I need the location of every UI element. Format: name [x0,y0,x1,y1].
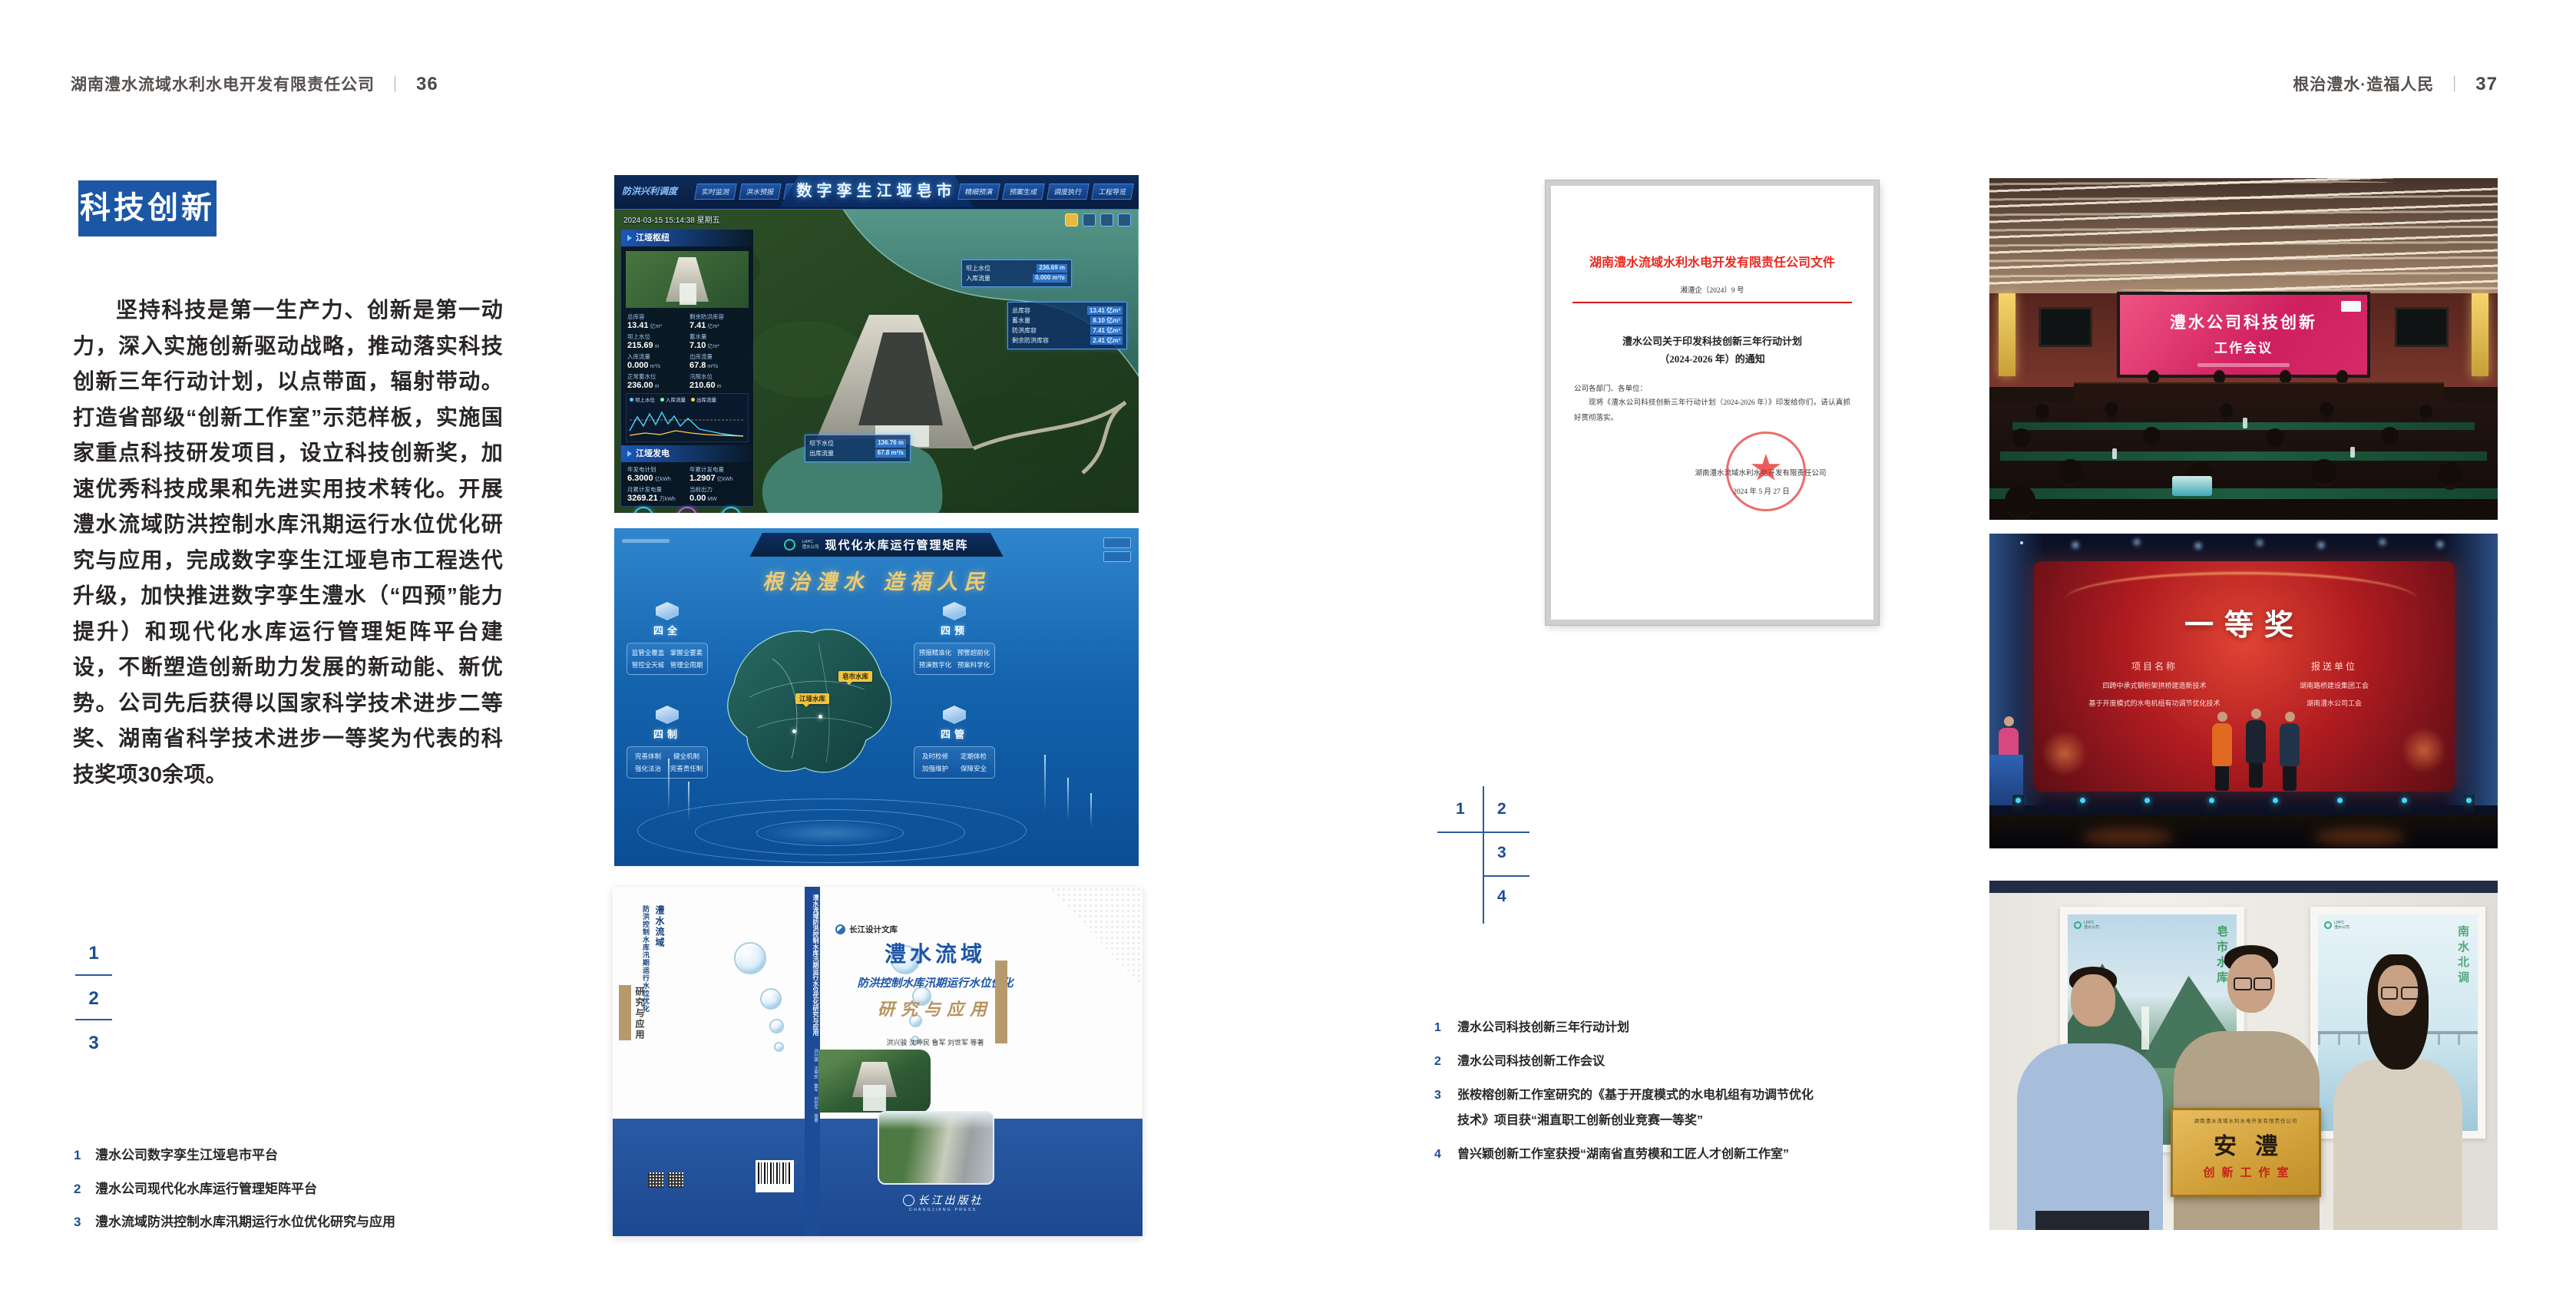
audience-head [2005,485,2035,516]
caption-number: 1 [1434,1015,1451,1040]
desk-row [1989,488,2498,499]
figure-book-cover: 澧水流域 防洪控制水库汛期运行水位优化 研究与应用 澧水流域防洪控制水库汛期运行… [613,887,1143,1236]
audience-area [1989,402,2498,520]
stat-current-output: 当前出力0.00MW [689,485,747,503]
map-marker-jiangya[interactable]: 江垭水库 [795,693,829,704]
rostrum-person [2336,370,2348,383]
figure-key-1: 1 [1456,800,1465,818]
spillway-shape [863,1085,886,1111]
power-stats-grid: 年发电计划6.3000亿kWh 年累计发电量1.2907亿kWh 月累计发电量3… [627,465,747,503]
award-org-column: 报送单位 湖南路桥建设集团工会 湖南澧水公司工会 [2244,660,2424,716]
caption-row: 3张桉榕创新工作室研究的《基于开度模式的水电机组有功调节优化技术》项目获“湘直职… [1434,1083,1818,1133]
tab-flood-forecast[interactable]: 洪水预报 [739,184,782,200]
stat-normal-level: 正常蓄水位236.00m [627,372,685,390]
group-name: 四预 [914,623,995,637]
map-dot [818,715,822,719]
photo-studio-plaque: LHPC澧水公司 皂市水库 LHPC澧水公司 南水北调 湖南澧水流域水利水电开发… [1989,881,2498,1230]
caption-list-right: 1澧水公司科技创新三年行动计划 2澧水公司科技创新工作会议 3张桉榕创新工作室研… [1434,1015,1818,1175]
tab-dispatch[interactable]: 调度执行 [1047,184,1090,200]
column-header: 报送单位 [2244,660,2424,673]
floor-reflection [2313,828,2406,845]
platform-tabs-right: 精细预演 预案生成 调度执行 工程导览 [959,184,1133,200]
alert-icon[interactable] [1065,213,1078,226]
platform-datetime: 2024-03-15 15:14:38 星期五 [623,213,720,225]
meeting-led-screen: 澧水公司科技创新 工作会议 [2117,292,2370,378]
caption-text: 澧水公司现代化水库运行管理矩阵平台 [95,1182,317,1196]
document-title-line2: （2024-2026 年）的通知 [1551,351,1873,365]
generator-gauges [621,507,753,513]
header-separator: ｜ [387,76,404,94]
platform-ring [756,820,904,846]
official-seal [1726,431,1806,511]
award-columns: 项目名称 四跨中承式钢桁架拱桥建造新技术 基于开度模式的水电机组有功调节优化技术… [2065,660,2424,716]
matrix-button-top[interactable] [1103,537,1131,548]
figure-key-divider [1437,832,1529,833]
photo-award-ceremony: 一等奖 项目名称 四跨中承式钢桁架拱桥建造新技术 基于开度模式的水电机组有功调节… [1989,534,2498,848]
panel-arrow-icon [627,235,632,241]
audience-head [2035,404,2049,418]
stat-total-capacity: 总库容13.41亿m³ [627,312,685,330]
callout-upstream: 坝上水位236.69 m 入库流量0.000 m³/s [961,260,1072,287]
publisher-name-en: CHANGJIANG PRESS [858,1208,1027,1212]
matrix-datetime-placeholder [622,539,670,543]
front-tan-bar [995,960,1007,1043]
figure-official-document: 湖南澧水流域水利水电开发有限责任公司文件 湘澧企〔2024〕9 号 澧水公司关于… [1546,180,1879,625]
screen-date-placeholder [2197,363,2290,367]
group-name: 四管 [914,726,995,741]
bokeh-glow [2401,727,2447,773]
award-project: 四跨中承式钢桁架拱桥建造新技术 [2071,680,2238,690]
map-dot [792,729,796,733]
panel-power-title: 江垭发电 [636,445,670,462]
waterfall-shape [2141,1007,2149,1050]
screen-title-line2: 工作会议 [2120,337,2367,356]
barcode [756,1160,794,1192]
matrix-group-siquan: 四全 监管全覆盖掌握全要素 管控全天候管理全周期 [627,602,708,675]
figure-key-1: 1 [75,943,112,964]
side-screen-left [2039,307,2092,347]
group-items: 监管全覆盖掌握全要素 管控全天候管理全周期 [627,643,708,675]
stat-inflow: 入库流量0.000m³/s [627,352,685,370]
rostrum-person [2148,370,2159,383]
layers-icon[interactable] [1083,213,1096,226]
water-droplet [760,988,782,1010]
award-winner-orange [2211,712,2234,791]
stat-remaining-flood-capacity: 剩余防洪库容7.41亿m³ [689,312,747,330]
matrix-button-bottom[interactable] [1103,551,1131,562]
photo-innovation-meeting: 澧水公司科技创新 工作会议 [1989,178,2498,520]
caption-number: 1 [74,1148,95,1163]
audience-head [2266,428,2284,447]
group-items: 完善体制健全机制 强化法治完善责任制 [627,746,708,779]
globe-icon [835,924,845,934]
audience-head [2320,402,2333,416]
screen-logo [2341,301,2361,312]
hub-stats-grid: 总库容13.41亿m³ 剩余防洪库容7.41亿m³ 坝上水位215.69m 蓄水… [627,312,747,390]
spine-title: 澧水流域防洪控制水库汛期运行水位优化研究与应用 [812,894,819,1036]
document-title-line1: 澧水公司关于印发科技创新三年行动计划 [1551,333,1873,348]
cube-icon [943,706,966,724]
group-items: 预报精准化预警超前化 预演数字化预案科学化 [914,643,995,675]
caption-text: 曾兴颖创新工作室获授“湖南省直劳模和工匠人才创新工作室” [1457,1142,1789,1167]
stat-annual-generation: 年累计发电量1.2907亿kWh [689,465,747,483]
award-project: 基于开度模式的水电机组有功调节优化技术 [2071,698,2238,708]
chart-legend: 坝上水位 入库流量 出库流量 [627,394,748,405]
poster-title-vertical: 南水北调 [2455,925,2472,987]
figure-key-divider [75,1019,112,1020]
lhpc-logo-small: LHPC澧水公司 [2324,921,2349,930]
figure-key-4: 4 [1497,888,1506,906]
cover-photo-dam-front [878,1111,994,1185]
caption-number: 3 [74,1215,95,1230]
matrix-slogan: 根治澧水 造福人民 [614,565,1139,595]
caption-row: 2澧水公司现代化水库运行管理矩阵平台 [74,1178,317,1197]
qr-code [648,1172,663,1188]
body-paragraph: 坚持科技是第一生产力、创新是第一动力，深入实施创新驱动战略，推动落实科技创新三年… [73,293,503,792]
stat-annual-plan: 年发电计划6.3000亿kWh [627,465,685,483]
side-screen-right [2395,307,2449,347]
legend-dot-outflow [691,398,695,402]
publisher-name: 长江出版社 [918,1195,984,1207]
innovation-studio-plaque: 湖南澧水流域水利水电开发有限责任公司 安澧 创新工作室 [2171,1108,2321,1197]
ceiling-light-strips [1989,178,2498,301]
group-name: 四全 [627,623,708,637]
settings-icon[interactable] [1118,213,1131,226]
award-org: 湖南澧水公司工会 [2250,698,2418,708]
legend-dot-level [630,398,633,402]
glasses-icon [2234,977,2252,990]
matrix-group-siguan: 四管 及时检修定期体检 加强维护保障安全 [914,706,995,779]
figure-key-divider [75,974,112,976]
section-title-badge: 科技创新 [78,180,217,236]
back-tan-bar [619,985,631,1040]
tissue-box [2172,476,2212,496]
lhpc-logo-small: LHPC澧水公司 [2074,921,2099,930]
hub-data-panel: 江垭枢纽 总库容13.41亿m³ 剩余防洪库容7.41亿m³ 坝上水位215.6… [620,229,754,507]
group-name: 四制 [627,726,708,741]
document-number: 湘澧企〔2024〕9 号 [1551,284,1873,295]
audience-head [2439,462,2462,485]
water-bottle [2112,448,2117,459]
legend-dot-inflow [660,398,664,402]
audience-head [2012,428,2031,447]
light-pillar [688,782,689,820]
figure-key-2: 2 [1497,800,1506,818]
audience-head [2381,427,2399,445]
lhpc-logo-icon [784,539,795,551]
stage-truss-lights [2020,541,2023,544]
moving-head-lights [2012,795,2475,812]
platform-mode-label: 防洪兴利调度 [622,184,677,197]
person-right-body [2333,1059,2462,1230]
cube-icon [656,602,679,620]
platform-toolbar-icons [1065,213,1131,226]
tab-rehearsal[interactable]: 精细预演 [957,184,1000,200]
figure-key-divider [1483,786,1484,924]
group-items: 及时检修定期体检 加强维护保障安全 [914,746,995,779]
audience-head [2105,402,2118,416]
caption-number: 3 [1434,1083,1451,1108]
header-separator: ｜ [2446,76,2463,94]
audience-head [2220,404,2233,417]
caption-text: 澧水公司数字孪生江垭皂市平台 [95,1148,278,1162]
platform-title: 数字孪生江垭皂市 [780,175,974,207]
figure-key-3: 3 [75,1033,112,1054]
company-name: 湖南澧水流域水利水电开发有限责任公司 [71,76,375,94]
document-body: 现将《澧水公司科技创新三年行动计划（2024-2026 年）》印发给你们，请认真… [1574,396,1850,427]
wall-lamp-left [1999,293,2015,376]
stat-storage: 蓄水量7.10亿m³ [689,332,747,350]
award-title: 一等奖 [2034,601,2455,643]
caption-text: 澧水公司科技创新三年行动计划 [1457,1015,1629,1040]
map-marker-zaoshi[interactable]: 皂市水库 [838,671,872,682]
generator-gauge-1 [633,507,653,513]
series-name: 长江设计文库 [849,924,898,935]
caption-number: 2 [1434,1049,1451,1074]
screen-title-line1: 澧水公司科技创新 [2120,310,2367,333]
document-salutation: 公司各部门、各单位： [1574,382,1647,393]
caption-row: 2澧水公司科技创新工作会议 [1434,1049,1818,1074]
barcode-bars [758,1162,792,1184]
caption-row: 1澧水公司科技创新三年行动计划 [1434,1015,1818,1040]
wall-lamp-right [2472,293,2488,376]
logo-ring-icon [2324,921,2332,929]
document-red-rule [1572,302,1852,303]
audience-head [2312,459,2336,484]
water-droplet [734,942,766,974]
back-title-tail: 研究与应用 [633,987,646,1040]
halftone-corner [997,887,1143,987]
cube-icon [656,706,679,724]
light-pillar [668,759,670,812]
running-head-left: 湖南澧水流域水利水电开发有限责任公司｜36 [71,72,438,95]
stat-upstream-level: 坝上水位215.69m [627,332,685,350]
figure-matrix-platform: LHPC澧水公司 现代化水库运行管理矩阵 根治澧水 造福人民 皂市水库 江垭水库… [614,528,1139,866]
award-project-column: 项目名称 四跨中承式钢桁架拱桥建造新技术 基于开度模式的水电机组有功调节优化技术 [2065,660,2244,716]
rostrum-table [2074,382,2444,404]
callout-downstream: 坝下水位136.76 m 出库流量67.8 m³/s [805,435,911,462]
spine-authors: 洪兴骏 沈坤民 鲁军 刘世军 等著 [813,1049,818,1122]
tab-realtime-monitoring[interactable]: 实时监测 [694,184,737,200]
series-logo: 长江设计文库 [835,924,898,935]
caption-number: 4 [1434,1142,1451,1167]
matrix-group-sizhi: 四制 完善体制健全机制 强化法治完善责任制 [627,706,708,779]
water-bottle [2243,418,2247,428]
award-presenter-suit [2244,709,2267,788]
publisher-block: 长江出版社 CHANGJIANG PRESS [858,1192,1027,1212]
column-header: 项目名称 [2065,660,2244,673]
award-winner-navy [2278,712,2301,791]
panel-header-hub: 江垭枢纽 [621,230,753,246]
stat-flood-limit-level: 汛限水位210.60m [689,372,747,390]
caption-row: 1澧水公司数字孪生江垭皂市平台 [74,1144,278,1163]
caption-row: 4曾兴颖创新工作室获授“湖南省直劳模和工匠人才创新工作室” [1434,1142,1818,1167]
cover-photo-canyon-dam [818,1050,931,1113]
floor-reflection [2082,828,2174,845]
water-level-chart: 坝上水位 入库流量 出库流量 [626,393,749,442]
meeting-ceiling [1989,178,2498,293]
running-head-right: 根治澧水·造福人民｜37 [2293,72,2498,95]
audience-head [2058,459,2083,484]
matrix-title: 现代化水库运行管理矩阵 [825,537,969,553]
callout-capacity: 总库容13.41 亿m³ 蓄水量8.10 亿m³ 防洪库容7.41 亿m³ 剩余… [1007,302,1127,349]
figure-key-divider [1483,875,1529,877]
page-number-right: 37 [2475,74,2498,94]
qr-code [668,1172,683,1188]
sky-strip [879,1113,993,1129]
rostrum-person [2280,370,2291,383]
water-bottle [2350,447,2355,458]
generator-gauge-3 [721,507,741,513]
panel-arrow-icon [627,451,632,457]
tab-project-tour[interactable]: 工程导览 [1091,184,1134,200]
stat-outflow: 出库流量67.8m³/s [689,352,747,370]
logo-ring-icon [2074,921,2082,929]
book-spine: 澧水流域防洪控制水库汛期运行水位优化研究与应用 洪兴骏 沈坤民 鲁军 刘世军 等… [805,887,820,1236]
water-droplet [769,1019,784,1033]
page-number-left: 36 [416,74,438,94]
tab-plan-generation[interactable]: 预案生成 [1002,184,1045,200]
motto: 根治澧水·造福人民 [2293,76,2434,94]
matrix-group-siyu: 四预 预报精准化预警超前化 预演数字化预案科学化 [914,602,995,675]
figure-digital-twin-platform: 防洪兴利调度 实时监测 洪水预报 防洪预警 数字孪生江垭皂市 精细预演 预案生成… [614,175,1139,513]
stat-monthly-generation: 月累计发电量3269.21万kWh [627,485,685,503]
water-droplet [774,1042,784,1052]
person-left-head [2071,974,2115,1027]
audience-head [2143,427,2161,445]
book-title-sub: 防洪控制水库汛期运行水位优化 [818,974,1052,990]
light-pillar [1067,778,1069,820]
matrix-header: LHPC澧水公司 现代化水库运行管理矩阵 [750,533,1004,557]
bokeh-glow [2042,730,2088,776]
figure-key-3: 3 [1497,844,1506,862]
hub-inset-photo [626,251,749,308]
award-org: 湖南路桥建设集团工会 [2250,680,2418,690]
panel-hub-title: 江垭枢纽 [636,230,670,246]
lhpc-logo-text: LHPC澧水公司 [802,540,818,550]
person-left-trousers [2035,1211,2149,1230]
cube-icon [943,602,966,620]
caption-row: 3澧水流域防洪控制水库汛期运行水位优化研究与应用 [74,1211,395,1230]
audience-head [2419,405,2432,418]
document-red-header: 湖南澧水流域水利水电开发有限责任公司文件 [1551,252,1873,270]
figure-key-2: 2 [75,988,112,1010]
caption-text: 澧水公司科技创新工作会议 [1457,1049,1605,1074]
plaque-subtitle: 创新工作室 [2173,1164,2319,1180]
ceiling-strip [1989,881,2498,893]
light-pillar [1090,793,1092,828]
compass-icon[interactable] [1100,213,1113,226]
rostrum-person [2214,370,2225,383]
seal-star-icon [1751,454,1781,483]
panel-header-power: 江垭发电 [621,445,753,462]
spillway-shape [680,283,696,305]
caption-text: 澧水流域防洪控制水库汛期运行水位优化研究与应用 [95,1215,395,1229]
light-pillar [1044,755,1046,812]
plaque-name: 安澧 [2173,1127,2319,1161]
caption-number: 2 [74,1182,95,1197]
plaque-org-line: 湖南澧水流域水利水电开发有限责任公司 [2173,1116,2319,1124]
caption-text: 张桉榕创新工作室研究的《基于开度模式的水电机组有功调节优化技术》项目获“湘直职工… [1457,1083,1818,1133]
generator-gauge-2 [677,507,697,513]
glasses-icon [2381,987,2398,1000]
stage-floor [1989,815,2498,848]
chart-lines [627,405,748,438]
person-left-body [2017,1043,2163,1230]
publisher-logo-icon [903,1195,914,1206]
